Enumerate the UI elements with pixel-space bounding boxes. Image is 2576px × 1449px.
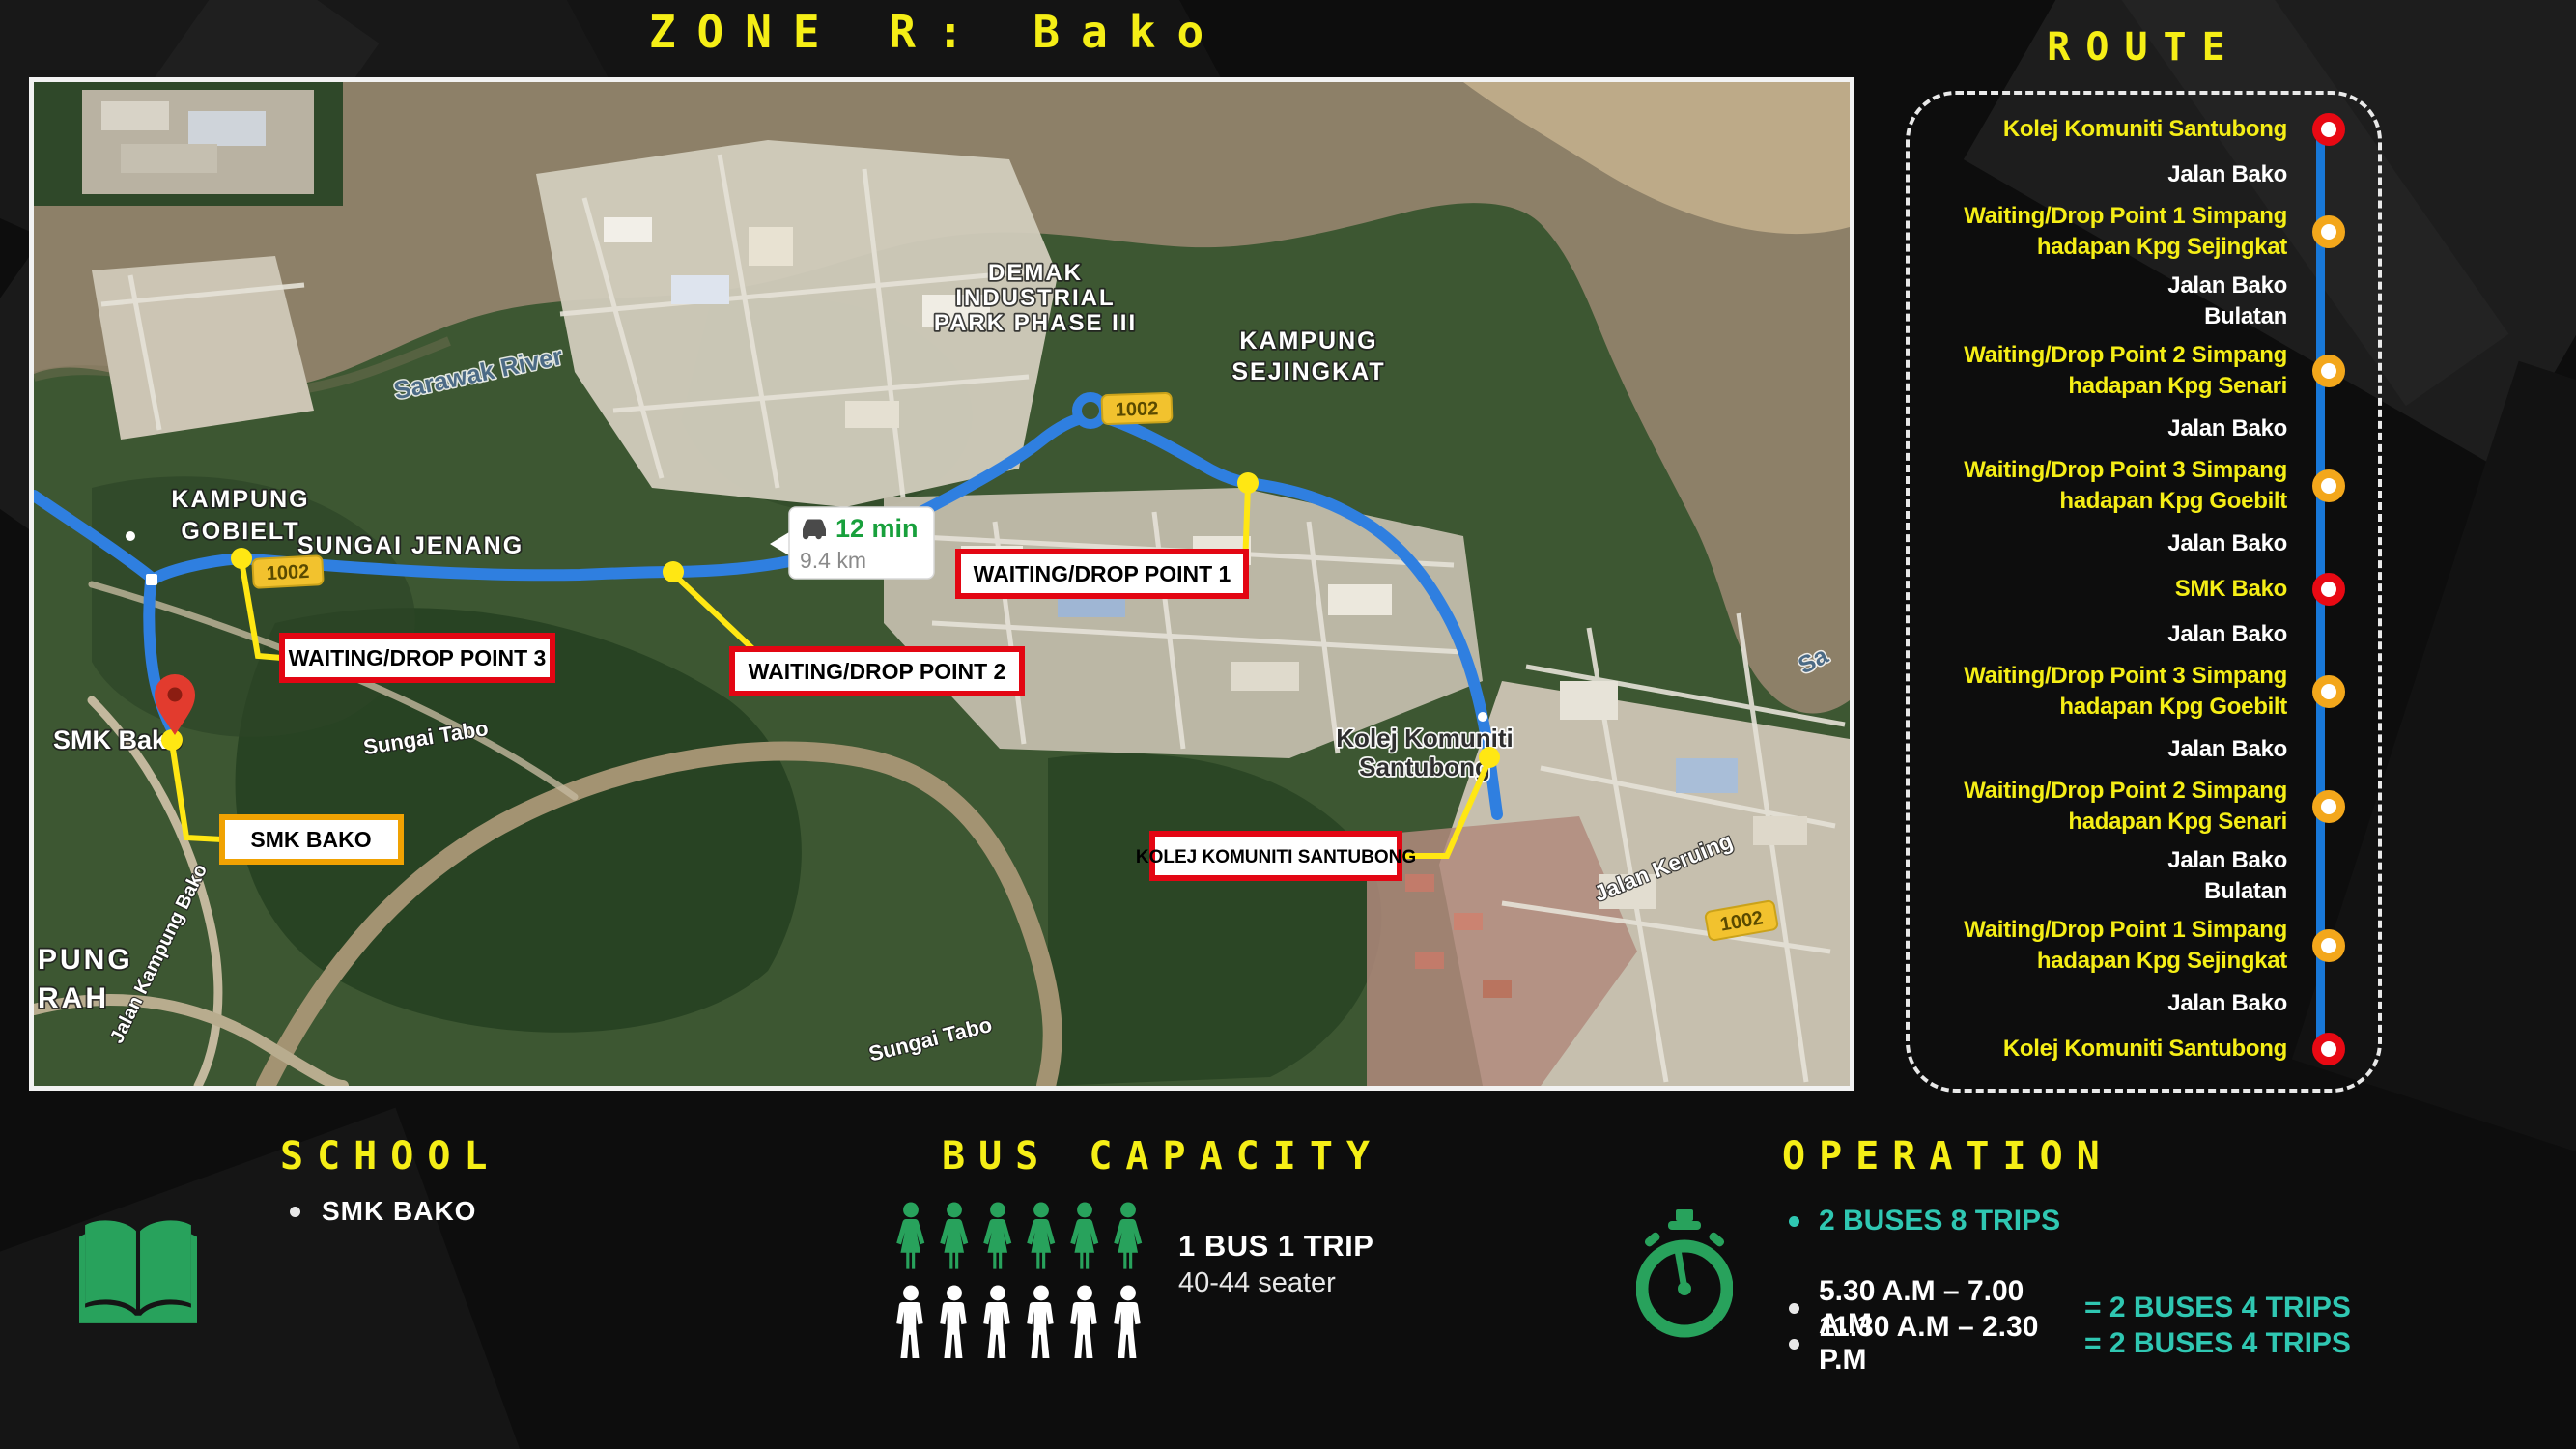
stop-marker	[2312, 675, 2345, 708]
route-waypoint-square	[146, 574, 157, 585]
satellite-map: 1002 1002 1002 Sarawak River Sa KAMPUNG …	[29, 77, 1854, 1091]
route-stop: Kolej Komuniti Santubong	[1910, 108, 2378, 150]
woman-icon	[1067, 1202, 1102, 1275]
stop-marker	[2312, 929, 2345, 962]
place-label-kampung-sejingkat: KAMPUNG	[1239, 327, 1377, 355]
route-stop: Waiting/Drop Point 3 Simpang hadapan Kpg…	[1910, 659, 2378, 724]
capacity-line1: 1 BUS 1 TRIP	[1178, 1229, 1373, 1264]
place-label-rah: RAH	[38, 982, 109, 1014]
operation-row-2: 11.30 A.M – 2.30 P.M = 2 BUSES 4 TRIPS	[1789, 1311, 2351, 1377]
route-road: Jalan Bako	[1910, 154, 2378, 195]
callout-kolej: KOLEJ KOMUNITI SANTUBONG	[1136, 834, 1416, 878]
callout-wp2: WAITING/DROP POINT 2	[732, 649, 1022, 694]
callout-smk-bako: SMK BAKO	[222, 817, 401, 862]
stop-marker	[2312, 790, 2345, 823]
page-title: ZONE R: Bako	[29, 6, 1845, 58]
svg-text:1002: 1002	[266, 561, 310, 584]
route-stop: Waiting/Drop Point 1 Simpang hadapan Kpg…	[1910, 913, 2378, 979]
route-road: Jalan Bako	[1910, 523, 2378, 564]
school-icon	[79, 1213, 197, 1327]
svg-text:KOLEJ KOMUNITI SANTUBONG: KOLEJ KOMUNITI SANTUBONG	[1136, 847, 1416, 867]
woman-icon	[980, 1202, 1015, 1275]
route-stop: Waiting/Drop Point 1 Simpang hadapan Kpg…	[1910, 199, 2378, 265]
svg-text:WAITING/DROP POINT 3: WAITING/DROP POINT 3	[289, 645, 547, 670]
svg-text:SMK BAKO: SMK BAKO	[250, 827, 371, 852]
map-canvas: 1002 1002 1002 Sarawak River Sa KAMPUNG …	[34, 82, 1850, 1086]
operation-title: OPERATION	[1782, 1134, 2284, 1179]
place-label-kampung-sejingkat: SEJINGKAT	[1231, 358, 1385, 385]
infographic-page: ZONE R: Bako	[0, 0, 2576, 1449]
road-shield-1002: 1002	[1101, 393, 1172, 424]
bullet-dot	[1789, 1216, 1799, 1227]
route-panel-title: ROUTE	[1906, 25, 2382, 70]
bullet-dot	[1789, 1339, 1799, 1350]
route-dot	[1478, 712, 1487, 722]
callout-wp3: WAITING/DROP POINT 3	[282, 636, 552, 680]
stop-marker	[2312, 355, 2345, 387]
place-label-demak: DEMAK	[988, 260, 1083, 286]
man-icon	[1067, 1285, 1102, 1358]
man-icon	[980, 1285, 1015, 1358]
route-road: Jalan Bako	[1910, 408, 2378, 449]
place-label-sungai-jenang: SUNGAI JENANG	[297, 532, 524, 559]
terminal-marker	[2312, 573, 2345, 606]
woman-icon	[893, 1202, 928, 1275]
svg-text:WAITING/DROP POINT 1: WAITING/DROP POINT 1	[974, 561, 1231, 586]
man-icon	[893, 1285, 928, 1358]
route-stop: Waiting/Drop Point 2 Simpang hadapan Kpg…	[1910, 774, 2378, 839]
capacity-figures-men	[893, 1285, 1146, 1358]
operation-summary: 2 BUSES 8 TRIPS	[1789, 1205, 2060, 1237]
route-stop: SMK Bako	[1910, 568, 2378, 610]
place-label-kampung-gobielt: KAMPUNG	[171, 486, 309, 513]
place-label-kampung-gobielt: GOBIELT	[181, 518, 299, 545]
school-item: SMK BAKO	[290, 1196, 476, 1227]
stop-marker	[2312, 469, 2345, 502]
woman-icon	[937, 1202, 972, 1275]
stopwatch-icon	[1636, 1209, 1733, 1345]
capacity-line2: 40-44 seater	[1178, 1267, 1336, 1299]
route-road: Jalan Bako Bulatan	[1910, 843, 2378, 909]
svg-text:1002: 1002	[1115, 398, 1158, 421]
stop-marker	[2312, 215, 2345, 248]
svg-text:WAITING/DROP POINT 2: WAITING/DROP POINT 2	[749, 659, 1006, 684]
svg-text:12 min: 12 min	[835, 514, 919, 543]
terminal-marker	[2312, 113, 2345, 146]
poi-label-kolej: Santubong	[1359, 753, 1490, 781]
route-road: Jalan Bako	[1910, 728, 2378, 770]
capacity-figures-women	[893, 1202, 1146, 1275]
bullet-dot	[290, 1207, 300, 1217]
woman-icon	[1111, 1202, 1146, 1275]
route-stop-list: Kolej Komuniti Santubong Jalan Bako Wait…	[1906, 91, 2382, 1093]
man-icon	[1111, 1285, 1146, 1358]
man-icon	[937, 1285, 972, 1358]
place-label-pung: PUNG	[38, 944, 133, 976]
svg-text:9.4 km: 9.4 km	[800, 548, 866, 573]
bus-capacity-title: BUS CAPACITY	[942, 1134, 1463, 1179]
terminal-marker	[2312, 1033, 2345, 1065]
route-road: Jalan Bako	[1910, 613, 2378, 655]
route-stop: Kolej Komuniti Santubong	[1910, 1028, 2378, 1069]
woman-icon	[1024, 1202, 1059, 1275]
route-road: Jalan Bako Bulatan	[1910, 269, 2378, 334]
school-title: SCHOOL	[280, 1134, 734, 1179]
place-label-demak: INDUSTRIAL	[955, 285, 1115, 311]
route-dot	[126, 531, 135, 541]
route-stop: Waiting/Drop Point 3 Simpang hadapan Kpg…	[1910, 453, 2378, 519]
road-shield-1002: 1002	[252, 555, 323, 588]
route-info-bubble: 12 min 9.4 km	[770, 507, 934, 579]
place-label-demak: PARK PHASE III	[934, 310, 1137, 336]
route-stop: Waiting/Drop Point 2 Simpang hadapan Kpg…	[1910, 338, 2378, 404]
callout-wp1: WAITING/DROP POINT 1	[958, 552, 1246, 596]
man-icon	[1024, 1285, 1059, 1358]
route-road: Jalan Bako	[1910, 982, 2378, 1024]
